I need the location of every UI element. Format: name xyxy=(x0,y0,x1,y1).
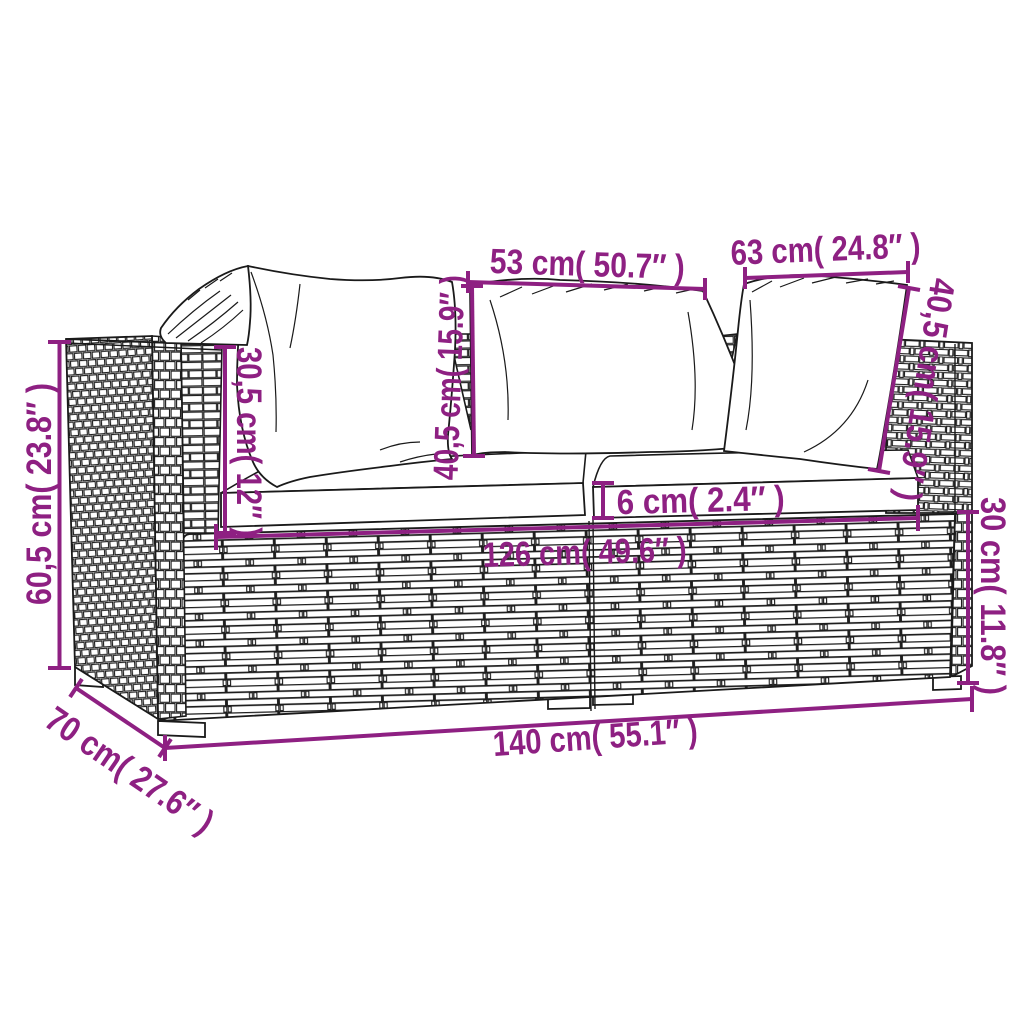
svg-text:126 cm( 49.6″ ): 126 cm( 49.6″ ) xyxy=(482,530,687,575)
svg-text:60,5 cm( 23.8″ ): 60,5 cm( 23.8″ ) xyxy=(20,383,59,605)
svg-text:40,5 cm( 15.9″ ): 40,5 cm( 15.9″ ) xyxy=(426,274,472,480)
svg-text:63 cm( 24.8″ ): 63 cm( 24.8″ ) xyxy=(730,226,921,273)
svg-text:53 cm( 50.7″ ): 53 cm( 50.7″ ) xyxy=(489,242,685,287)
svg-text:30 cm( 11.8″ ): 30 cm( 11.8″ ) xyxy=(973,497,1012,695)
svg-text:30,5 cm( 12″ ): 30,5 cm( 12″ ) xyxy=(229,347,268,537)
svg-text:6 cm( 2.4″ ): 6 cm( 2.4″ ) xyxy=(616,479,785,522)
